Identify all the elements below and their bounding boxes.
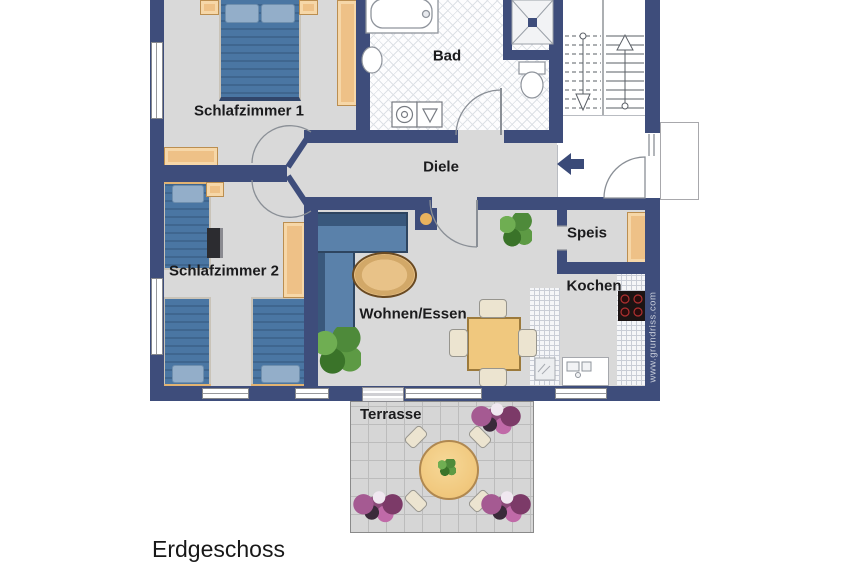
wall-bath-right [549, 0, 563, 143]
kitchen-sink-unit [562, 357, 609, 386]
room-label-schlafzimmer1: Schlafzimmer 1 [194, 103, 304, 120]
room-label-speis: Speis [567, 225, 607, 242]
single-bed [251, 297, 308, 392]
window [151, 278, 163, 355]
pillow [261, 365, 300, 383]
wall-hall-bottom-left [304, 197, 432, 210]
flower-pot [470, 402, 522, 436]
wall-hall-top [304, 130, 356, 143]
cooktop [618, 291, 646, 321]
wall-shower-left [503, 0, 512, 57]
window [405, 388, 482, 399]
stair-landing-line [563, 115, 645, 116]
flower-pot [480, 490, 532, 524]
room-label-bad: Bad [433, 48, 461, 65]
vestibule-line [557, 145, 558, 197]
bathroom-floor [370, 0, 549, 130]
entry-door-opening [645, 133, 660, 198]
dresser [164, 147, 218, 166]
dining-chair [518, 329, 537, 357]
wall-bedroom-divider [150, 165, 287, 182]
wardrobe [337, 0, 358, 106]
side-table [415, 208, 437, 230]
terrace-plant-icon [438, 459, 456, 477]
window [151, 42, 163, 119]
entry-landing [660, 122, 699, 200]
dining-chair [449, 329, 468, 357]
side-table-top [420, 213, 432, 225]
dining-table [467, 317, 521, 371]
corner-sofa-top-arm [311, 212, 408, 253]
room-label-terrasse: Terrasse [360, 406, 421, 423]
pillow [225, 4, 259, 23]
flower-pot [352, 490, 404, 524]
double-bed [219, 0, 301, 101]
wall-bath-bottom-left [356, 130, 458, 143]
pillow [172, 185, 205, 203]
staircase-floor [563, 0, 645, 143]
wall-pantry-left-upper [557, 197, 567, 226]
nightstand [200, 0, 219, 15]
wall-bath-bottom-right [504, 130, 549, 143]
single-bed [163, 297, 211, 392]
nightstand [299, 0, 318, 15]
tv [207, 228, 223, 258]
window [295, 388, 329, 399]
wall-bedroom2-right [304, 198, 318, 388]
dining-chair [479, 368, 507, 387]
plant [500, 213, 532, 249]
wall-bath-left [356, 0, 370, 143]
wall-pantry-bottom [557, 262, 660, 274]
room-label-wohnen: Wohnen/Essen [359, 306, 466, 323]
window [555, 388, 607, 399]
pillow [261, 4, 295, 23]
floor-title: Erdgeschoss [152, 536, 285, 563]
floorplan-canvas: Schlafzimmer 1 Schlafzimmer 2 Bad Diele … [0, 0, 848, 565]
wall-hall-bottom-right [477, 197, 660, 210]
dining-chair [479, 299, 507, 318]
nightstand [206, 182, 224, 197]
room-label-schlafzimmer2: Schlafzimmer 2 [169, 263, 279, 280]
pillow [172, 365, 205, 383]
wall-shower-bottom [503, 50, 553, 60]
watermark-text: www.grundriss.com [648, 293, 659, 383]
single-bed [163, 176, 211, 270]
room-label-kochen: Kochen [566, 278, 621, 295]
terrace-door [362, 387, 404, 402]
plant [315, 327, 361, 377]
room-label-diele: Diele [423, 159, 459, 176]
entry-vestibule-floor [557, 143, 646, 198]
wardrobe [283, 222, 306, 298]
window [202, 388, 249, 399]
coffee-table [352, 252, 417, 298]
wall-right-upper [645, 0, 660, 133]
